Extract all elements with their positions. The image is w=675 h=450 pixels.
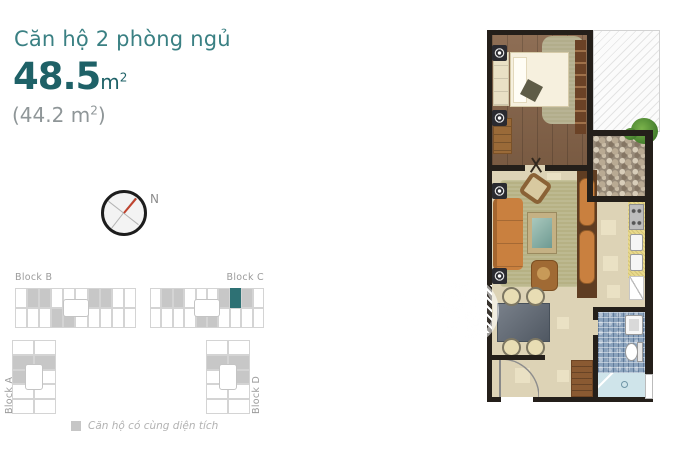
unit-cell bbox=[230, 308, 241, 328]
balcony bbox=[593, 30, 660, 132]
legend-label: Căn hộ có cùng diện tích bbox=[88, 420, 218, 432]
unit-cell bbox=[124, 288, 136, 308]
unit-cell-same-area bbox=[27, 288, 39, 308]
page: Căn hộ 2 phòng ngủ 48.5m2 (44.2 m2) N Bl… bbox=[0, 0, 675, 450]
bathroom-sink bbox=[625, 315, 643, 335]
unit-cell bbox=[15, 288, 27, 308]
unit-cell bbox=[112, 308, 124, 328]
floor-tile-accent bbox=[601, 220, 616, 235]
unit-cell-same-area bbox=[241, 288, 252, 308]
block-c-plate bbox=[150, 288, 264, 328]
unit-cell bbox=[228, 340, 250, 355]
block-d-label: Block D bbox=[251, 376, 262, 414]
area-primary: 48.5m2 bbox=[13, 55, 127, 98]
unit-cell bbox=[253, 288, 264, 308]
unit-cell bbox=[206, 340, 228, 355]
sink-basin bbox=[630, 254, 643, 271]
unit-cell bbox=[150, 288, 161, 308]
shower-drain bbox=[621, 381, 628, 388]
floor-tile-accent bbox=[557, 317, 569, 329]
storage-cabinet bbox=[571, 360, 593, 397]
toilet-bowl bbox=[625, 343, 638, 361]
wall bbox=[487, 397, 501, 402]
stove bbox=[629, 204, 644, 230]
wall bbox=[492, 355, 545, 360]
unit-cell bbox=[206, 399, 228, 414]
floor-plan bbox=[487, 30, 659, 408]
rock-garden bbox=[593, 136, 645, 196]
compass-north-needle bbox=[123, 198, 137, 214]
unit-cell bbox=[161, 308, 172, 328]
unit-cell bbox=[34, 399, 56, 414]
block-a-plate bbox=[12, 340, 56, 414]
unit-cell bbox=[112, 288, 124, 308]
wall bbox=[492, 165, 525, 171]
wall bbox=[587, 196, 645, 202]
wall bbox=[487, 30, 492, 402]
same-area-legend: Căn hộ có cùng diện tích bbox=[71, 420, 218, 432]
block-a-lobby-core bbox=[25, 364, 43, 390]
page-title: Căn hộ 2 phòng ngủ bbox=[14, 27, 231, 51]
unit-cell bbox=[228, 399, 250, 414]
unit-cell-same-area bbox=[88, 288, 100, 308]
unit-cell bbox=[241, 308, 252, 328]
bathroom-door-panel bbox=[645, 374, 653, 399]
unit-cell bbox=[12, 340, 34, 355]
area-secondary: (44.2 m2) bbox=[12, 103, 106, 127]
unit-cell bbox=[124, 308, 136, 328]
sofa bbox=[493, 198, 523, 270]
block-b-lobby-core bbox=[63, 299, 89, 317]
unit-cell-same-area bbox=[173, 288, 184, 308]
block-c-label: Block C bbox=[150, 272, 264, 283]
floor-tile-accent bbox=[557, 370, 569, 382]
unit-cell-same-area bbox=[218, 288, 229, 308]
bedroom-door-marker bbox=[525, 158, 547, 176]
dining-chair bbox=[526, 287, 545, 306]
floor-tile-accent bbox=[603, 256, 618, 271]
watermark bbox=[429, 276, 499, 346]
ac-unit-icon bbox=[492, 268, 507, 284]
entry-door-arc bbox=[501, 359, 539, 397]
wall bbox=[487, 30, 593, 35]
sink-basin bbox=[630, 234, 643, 251]
dining-chair bbox=[502, 287, 521, 306]
block-d-plate bbox=[206, 340, 250, 414]
compass-icon bbox=[101, 190, 147, 236]
wall bbox=[593, 312, 598, 320]
toilet bbox=[625, 340, 643, 364]
unit-cell bbox=[12, 399, 34, 414]
fridge-space bbox=[629, 276, 644, 300]
wall bbox=[593, 307, 645, 312]
cabinet-shelf bbox=[579, 230, 595, 284]
unit-cell bbox=[150, 308, 161, 328]
ac-unit-icon bbox=[492, 45, 507, 61]
block-b-plate bbox=[15, 288, 136, 328]
wall bbox=[593, 335, 598, 402]
ac-unit-icon bbox=[492, 110, 507, 126]
kitchen-sink bbox=[630, 234, 643, 274]
wall bbox=[545, 165, 587, 171]
coffee-table-glass bbox=[532, 218, 552, 248]
legend-swatch bbox=[71, 421, 81, 431]
shower-area bbox=[598, 373, 645, 397]
block-d-lobby-core bbox=[219, 364, 237, 390]
unit-cell bbox=[218, 308, 229, 328]
wall bbox=[587, 130, 645, 136]
wall bbox=[645, 130, 653, 402]
unit-cell-same-area bbox=[161, 288, 172, 308]
block-c-lobby-core bbox=[194, 299, 220, 317]
unit-cell-same-area bbox=[100, 288, 112, 308]
floor-tile-accent bbox=[607, 285, 620, 298]
unit-cell bbox=[173, 308, 184, 328]
unit-cell bbox=[34, 340, 56, 355]
unit-cell bbox=[15, 308, 27, 328]
compass-north-label: N bbox=[150, 192, 159, 206]
unit-cell-highlight bbox=[230, 288, 241, 308]
unit-cell bbox=[88, 308, 100, 328]
unit-cell bbox=[27, 308, 39, 328]
dining-table bbox=[497, 303, 550, 342]
wardrobe bbox=[575, 40, 586, 134]
coffee-table bbox=[527, 212, 557, 254]
bed bbox=[510, 52, 569, 107]
ac-unit-icon bbox=[492, 183, 507, 199]
unit-cell-same-area bbox=[39, 288, 51, 308]
sink-bowl bbox=[629, 319, 639, 331]
block-b-label: Block B bbox=[15, 272, 52, 283]
unit-cell bbox=[100, 308, 112, 328]
area-value: 48.5 bbox=[13, 55, 100, 98]
unit-cell bbox=[39, 308, 51, 328]
area-unit: m2 bbox=[100, 70, 127, 94]
side-table-top bbox=[537, 267, 550, 280]
unit-cell bbox=[253, 308, 264, 328]
wall bbox=[587, 30, 593, 202]
